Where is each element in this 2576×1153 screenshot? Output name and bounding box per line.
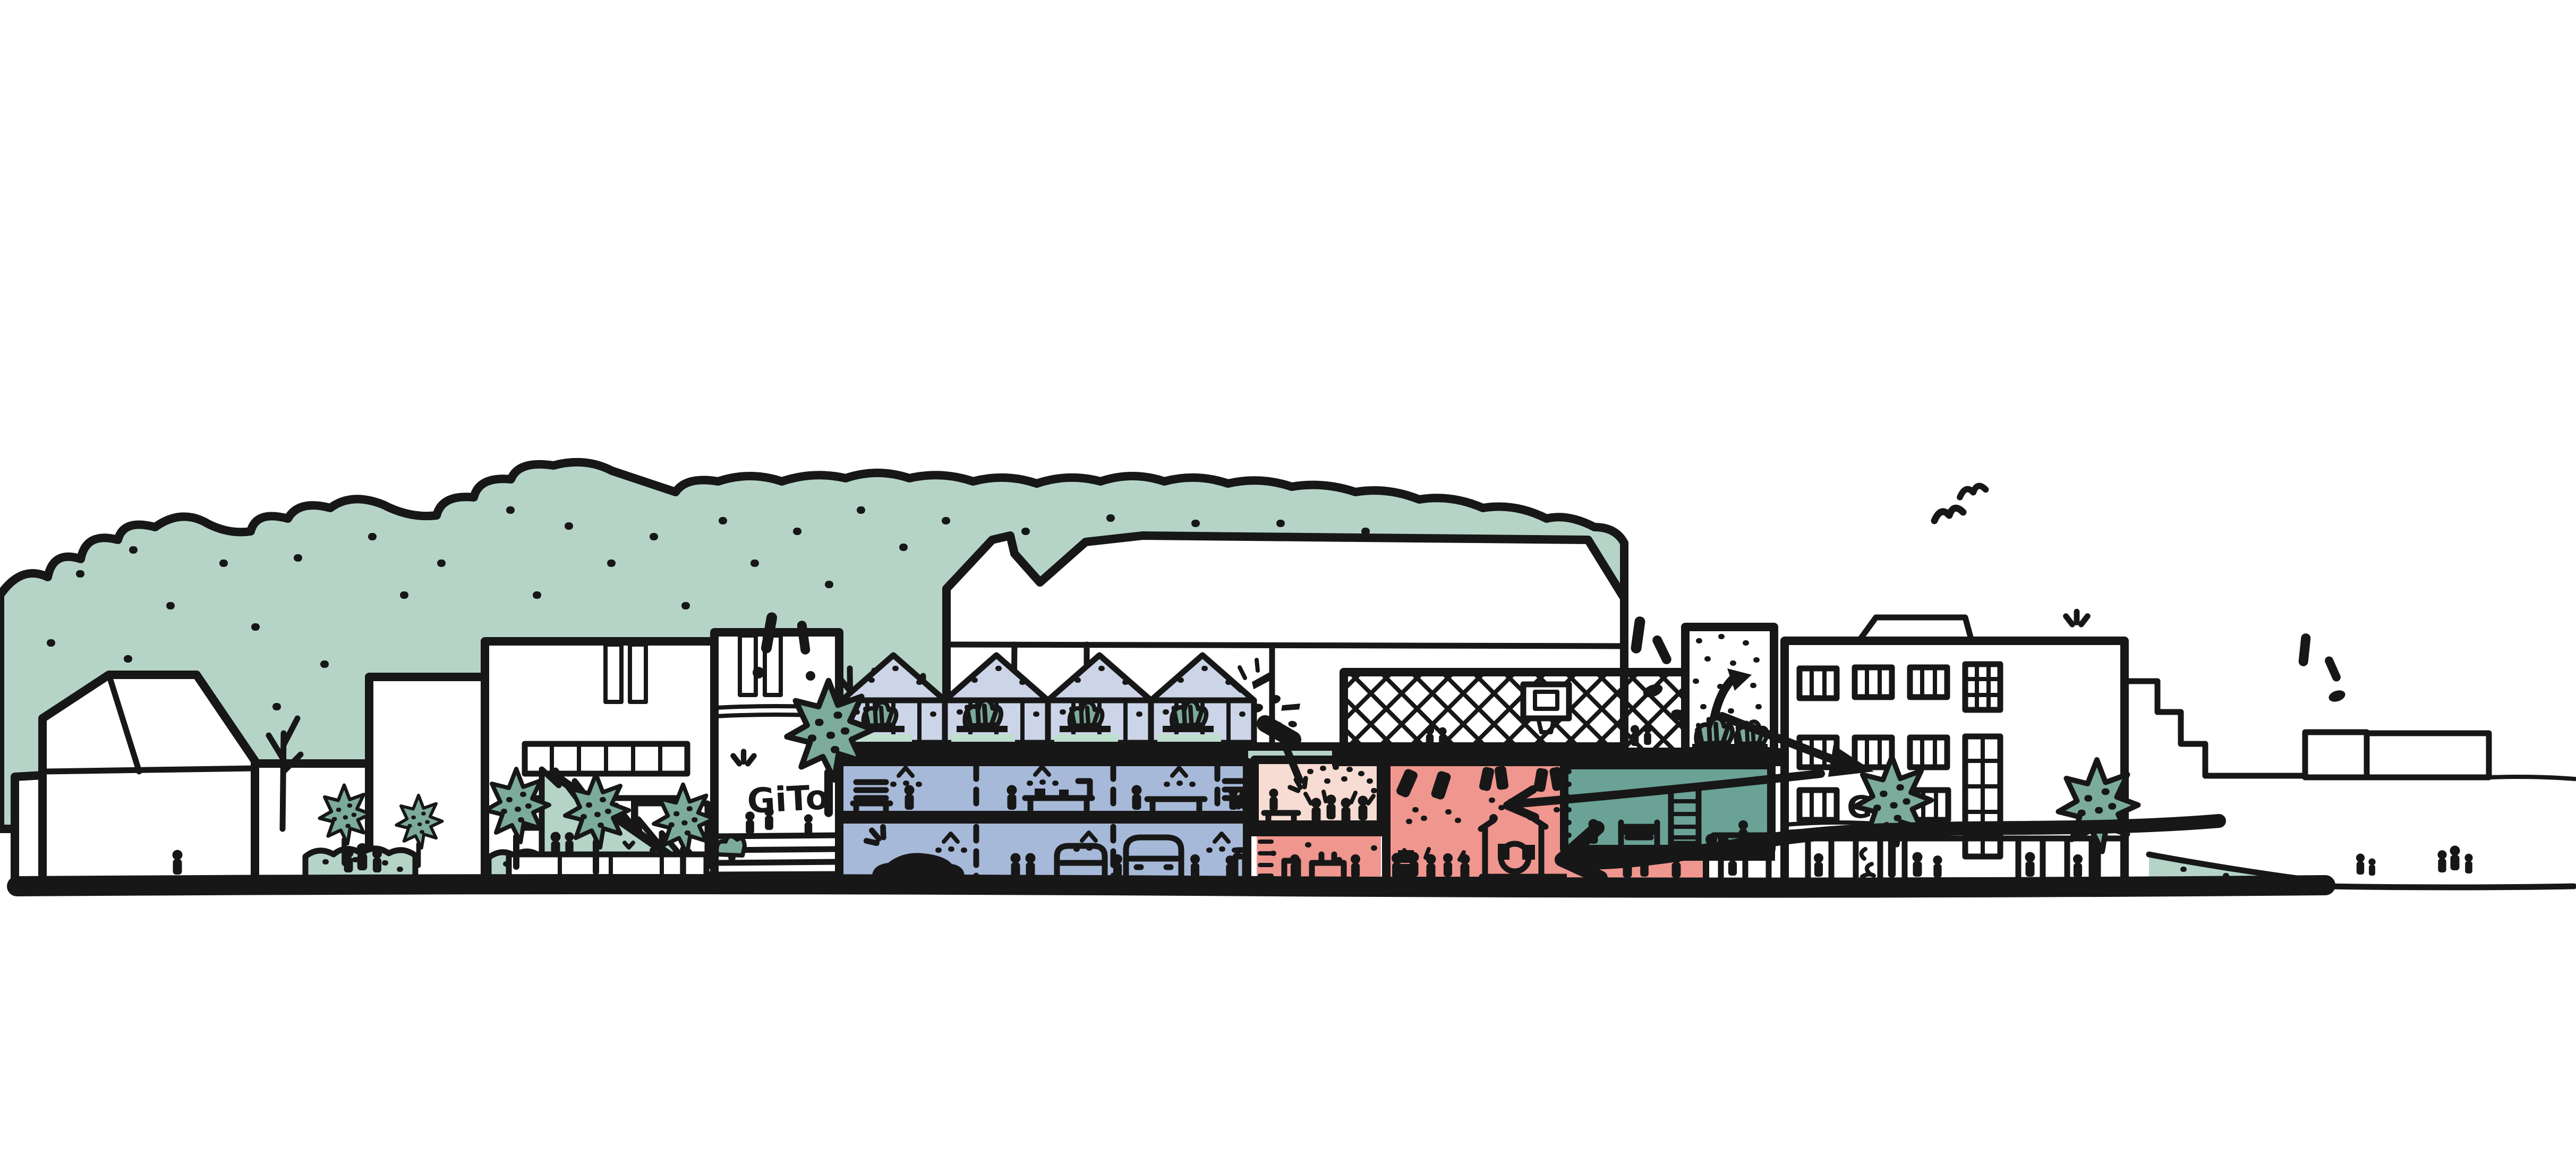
small-venue-room [1250, 760, 1385, 881]
person-figure [1409, 852, 1419, 877]
bird-icon [1960, 486, 1986, 497]
gito-label: GiTo [746, 778, 830, 821]
person-figure [1132, 785, 1142, 810]
window [1910, 667, 1947, 697]
person-figure [1728, 852, 1737, 876]
far-block-b [2367, 733, 2489, 777]
person-figure [1326, 795, 1336, 820]
mid-rise-roof-window-a [605, 645, 621, 702]
person-figure [357, 843, 368, 870]
person-figure [2450, 846, 2460, 871]
stepped-parapet [2125, 681, 2305, 776]
person-figure [1113, 854, 1122, 878]
ground-line [17, 884, 2325, 888]
gito-roof-window-a [740, 635, 756, 695]
person-figure [764, 807, 773, 830]
workshop-building [829, 743, 1250, 885]
window [1799, 668, 1837, 698]
person-figure [1631, 725, 1639, 746]
person-figure [565, 832, 574, 854]
person-figure [372, 849, 382, 872]
person-figure [1026, 853, 1036, 878]
person-figure [2368, 858, 2375, 876]
bird-icon [1934, 508, 1963, 521]
person-figure [1438, 727, 1446, 747]
sparkle-icon [2066, 612, 2088, 624]
mid-rise-roof-window-b [630, 645, 646, 702]
window [1799, 790, 1837, 820]
far-horizon-line [2489, 777, 2575, 779]
person-figure [1933, 855, 1942, 878]
person-figure [1643, 725, 1651, 745]
person-figure [1443, 853, 1453, 877]
person-figure [1190, 854, 1200, 878]
person-figure [344, 848, 354, 873]
person-figure [1011, 853, 1021, 878]
person-figure [1913, 852, 1923, 877]
person-figure [2356, 853, 2365, 875]
person-figure [2025, 852, 2035, 877]
illustration-canvas: GiTo [0, 0, 2576, 1153]
right-annex [2125, 681, 2575, 882]
person-figure [173, 850, 183, 875]
ground-line-thin [2325, 886, 2574, 887]
far-block-a [2305, 732, 2367, 777]
person-figure [1814, 853, 1823, 877]
person-figure [2437, 850, 2446, 872]
exclamation-doodles-right [2298, 633, 2347, 703]
window [1855, 667, 1892, 697]
person-figure [1007, 785, 1017, 810]
person-figure [1358, 796, 1368, 821]
person-figure [2073, 854, 2083, 878]
person-figure [1426, 726, 1434, 747]
person-figure [745, 811, 754, 834]
person-figure [2464, 854, 2472, 874]
person-figure [1351, 854, 1360, 878]
person-figure [1392, 853, 1402, 879]
person-figure [1311, 798, 1321, 823]
person-figure [905, 785, 915, 810]
dj-figure [1269, 789, 1278, 811]
ribbon-window-upper [525, 744, 687, 774]
workshop-floor-slab [839, 811, 1247, 824]
grid-window [1965, 664, 2000, 710]
window [1910, 737, 1947, 767]
gbo-building: GBo [1785, 612, 2138, 882]
person-figure [804, 814, 813, 835]
